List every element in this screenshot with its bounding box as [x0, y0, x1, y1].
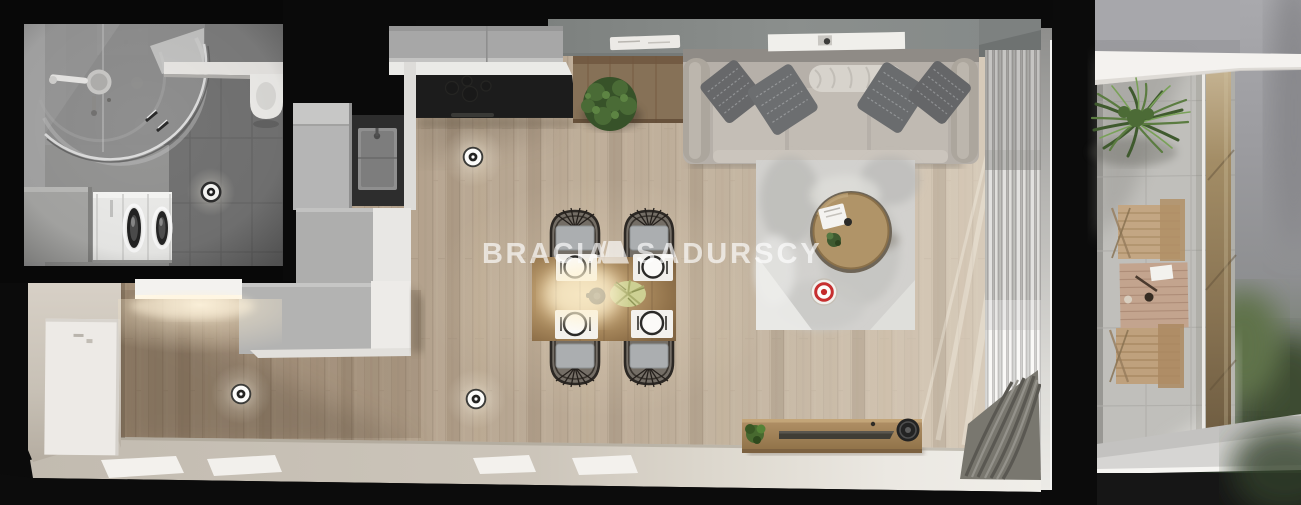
- svg-text:SADURSCY: SADURSCY: [636, 238, 823, 270]
- svg-text:BRACIA: BRACIA: [482, 238, 610, 270]
